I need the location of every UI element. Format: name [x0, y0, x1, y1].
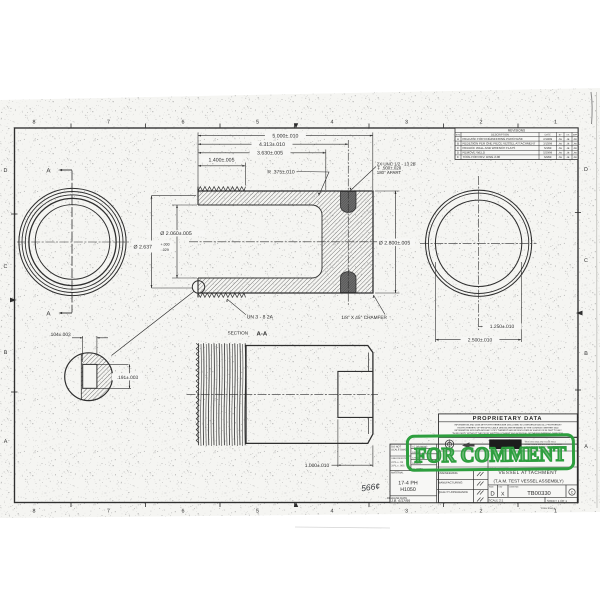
svg-text:7: 7: [107, 120, 110, 126]
svg-text:A: A: [584, 444, 588, 450]
svg-text:3 PL ± .005: 3 PL ± .005: [391, 465, 405, 468]
svg-text:Ø 2.637: Ø 2.637: [134, 245, 153, 251]
svg-text:E: E: [457, 155, 459, 159]
svg-text:APP: APP: [573, 134, 578, 137]
svg-text:JB: JB: [567, 147, 570, 150]
svg-text:MATERIAL: MATERIAL: [391, 471, 404, 474]
svg-text:MANUFACTURING: MANUFACTURING: [438, 480, 462, 484]
svg-text:TB00330: TB00330: [527, 490, 551, 497]
svg-text:1: 1: [554, 120, 557, 126]
svg-text:INFORMATION NOR DATA NOR ANY C: INFORMATION NOR DATA NOR ANY COPY THEREO…: [454, 429, 562, 432]
svg-text:Ø 2.800±.005: Ø 2.800±.005: [379, 241, 411, 247]
svg-text:DWG NO.: DWG NO.: [510, 486, 520, 489]
svg-text:JB: JB: [567, 142, 570, 145]
svg-text:REDUCE WALL AND WRENCH FLATS: REDUCE WALL AND WRENCH FLATS: [463, 146, 516, 150]
svg-text:H1050: H1050: [400, 487, 416, 493]
svg-text:180° APART: 180° APART: [377, 170, 402, 175]
svg-text:.104±.003: .104±.003: [49, 332, 71, 338]
svg-text:4.313±.010: 4.313±.010: [259, 142, 285, 148]
svg-text:6: 6: [182, 509, 185, 515]
svg-text:JB: JB: [567, 138, 570, 141]
svg-text:B: B: [457, 141, 459, 145]
svg-text:2: 2: [480, 509, 483, 515]
svg-text:JB: JB: [567, 152, 570, 155]
svg-text:D: D: [584, 167, 588, 173]
svg-text:C: C: [571, 491, 574, 495]
svg-text:SCALE DWG: SCALE DWG: [391, 448, 406, 451]
svg-text:RELEASE FOR ENGINEERING PURCHA: RELEASE FOR ENGINEERING PURCHASE: [463, 137, 523, 141]
svg-text:RIGHTS THERETO OF THE APPLICAB: RIGHTS THERETO OF THE APPLICABLE DESIGN …: [457, 426, 559, 429]
svg-text:QUALITY ASSURANCE: QUALITY ASSURANCE: [438, 490, 468, 494]
svg-text:UN 3 - 8 2A: UN 3 - 8 2A: [247, 314, 274, 320]
svg-text:2 PL ± .02: 2 PL ± .02: [391, 461, 403, 464]
svg-text:8: 8: [33, 509, 36, 515]
svg-text:5: 5: [256, 120, 259, 126]
svg-text:8: 8: [33, 120, 36, 126]
svg-text:2.500±.010: 2.500±.010: [468, 337, 493, 343]
svg-text:C: C: [4, 264, 8, 270]
svg-text:3: 3: [405, 120, 408, 126]
svg-text:3: 3: [405, 509, 408, 515]
svg-text:D: D: [4, 168, 8, 174]
svg-text:2: 2: [480, 120, 483, 126]
svg-text:J.B. 6/17/99: J.B. 6/17/99: [390, 499, 410, 503]
svg-text:6: 6: [182, 120, 185, 126]
svg-text:(T.A.M. TEST VESSEL ASSEMBLY): (T.A.M. TEST VESSEL ASSEMBLY): [493, 479, 564, 484]
svg-text:R .375±.010: R .375±.010: [267, 169, 294, 175]
svg-text:DATE: DATE: [545, 134, 552, 137]
svg-text:SIZE: SIZE: [489, 486, 494, 489]
svg-text:B: B: [584, 351, 588, 357]
svg-text:5.000±.010: 5.000±.010: [272, 133, 298, 139]
svg-text:PROPRIETARY DATA: PROPRIETARY DATA: [473, 416, 543, 422]
svg-text:A: A: [457, 137, 459, 141]
svg-text:JB: JB: [567, 156, 570, 159]
svg-text:+.000: +.000: [161, 243, 170, 247]
svg-text:5: 5: [256, 509, 259, 515]
svg-text:SHEET 1 OF 1: SHEET 1 OF 1: [547, 499, 567, 503]
svg-text:C: C: [584, 258, 588, 264]
svg-text:SCALE 2:1: SCALE 2:1: [489, 499, 504, 503]
svg-text:3.630±.005: 3.630±.005: [257, 151, 283, 157]
svg-text:1/8" X 45° CHAMFER: 1/8" X 45° CHAMFER: [341, 315, 387, 320]
svg-text:X: X: [501, 492, 505, 498]
svg-text:FORM 30449 A: FORM 30449 A: [541, 507, 556, 510]
svg-text:6/9/99: 6/9/99: [544, 156, 552, 159]
svg-text:17-4 PH: 17-4 PH: [398, 481, 418, 487]
svg-text:.191±.003: .191±.003: [117, 375, 139, 381]
svg-text:REDESIGN PER ONE PIECE VESSEL: REDESIGN PER ONE PIECE VESSEL ATTACHMENT: [463, 141, 536, 145]
svg-text:-.029: -.029: [161, 248, 169, 252]
svg-text:4: 4: [331, 120, 334, 126]
svg-text:5/20/99: 5/20/99: [543, 152, 552, 155]
svg-text:SECTION: SECTION: [228, 331, 248, 336]
svg-text:TOOL FOR REV. DWG 2.06: TOOL FOR REV. DWG 2.06: [463, 155, 501, 159]
svg-text:3/15/99: 3/15/99: [543, 142, 552, 145]
svg-text:REVISIONS: REVISIONS: [508, 129, 525, 133]
svg-text:4: 4: [331, 509, 334, 515]
svg-text:A: A: [4, 439, 8, 445]
svg-text:VESSEL ATTACHMENT: VESSEL ATTACHMENT: [499, 470, 558, 475]
svg-text:INFORMATION AND DATA SET FORTH: INFORMATION AND DATA SET FORTH HEREIN AR…: [454, 423, 562, 426]
svg-text:2/19/99: 2/19/99: [543, 138, 552, 141]
svg-text:1.000±.010: 1.000±.010: [305, 463, 330, 469]
svg-text:REMOVE WELD: REMOVE WELD: [463, 151, 486, 155]
svg-text:1.400±.005: 1.400±.005: [209, 157, 235, 163]
svg-text:1.250±.010: 1.250±.010: [490, 324, 515, 330]
svg-text:Ø 2.060±.005: Ø 2.060±.005: [160, 231, 192, 237]
svg-text:B: B: [4, 350, 8, 356]
svg-text:D: D: [490, 491, 495, 498]
svg-text:5/3/99: 5/3/99: [544, 147, 552, 150]
svg-text:A-A: A-A: [257, 330, 268, 337]
svg-text:7: 7: [107, 509, 110, 515]
